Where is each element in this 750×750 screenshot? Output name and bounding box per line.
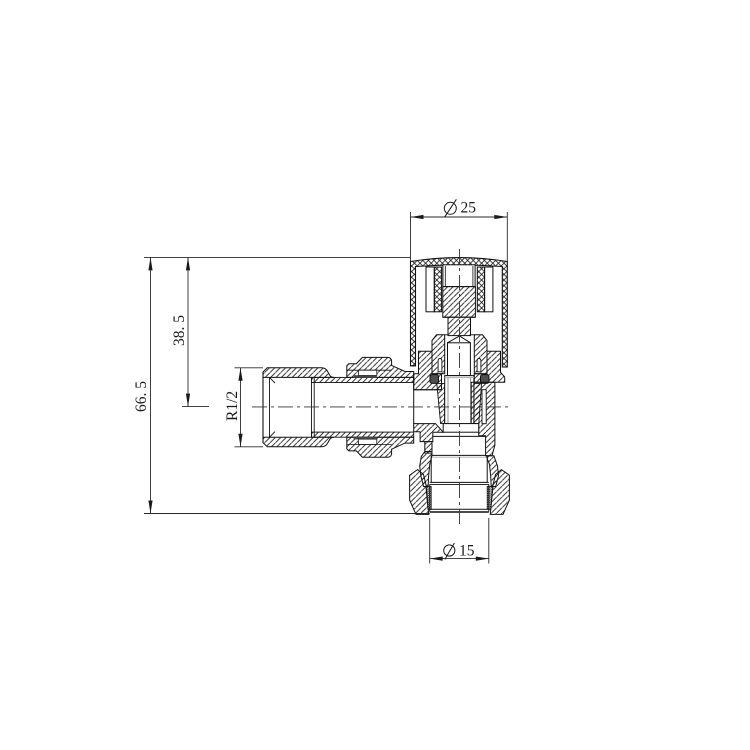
- svg-text:25: 25: [461, 200, 477, 217]
- svg-text:66. 5: 66. 5: [133, 381, 150, 412]
- svg-text:R1/2: R1/2: [224, 391, 241, 421]
- svg-text:38. 5: 38. 5: [171, 315, 188, 346]
- svg-text:15: 15: [459, 543, 475, 560]
